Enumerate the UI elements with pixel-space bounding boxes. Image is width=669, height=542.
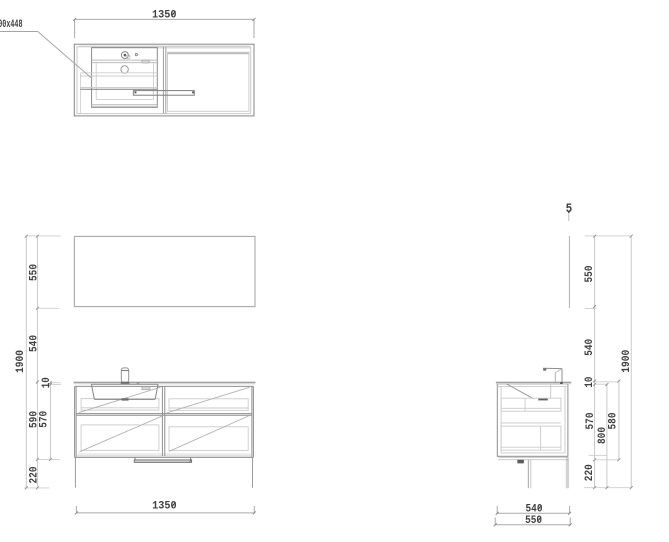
svg-text:10: 10 [584,377,596,388]
svg-text:10: 10 [41,377,53,388]
svg-text:540: 540 [584,339,596,356]
svg-text:540: 540 [526,503,543,515]
svg-text:1350: 1350 [152,500,177,512]
svg-text:800x448: 800x448 [0,19,23,31]
svg-text:540: 540 [29,335,41,352]
svg-text:580: 580 [607,413,619,430]
svg-text:5: 5 [566,202,573,216]
svg-text:550: 550 [525,515,542,527]
svg-text:1900: 1900 [621,350,633,373]
svg-text:550: 550 [584,266,596,283]
svg-text:570: 570 [39,411,51,428]
svg-text:220: 220 [28,467,40,484]
svg-text:1350: 1350 [152,9,177,21]
svg-text:220: 220 [584,464,596,481]
svg-text:1900: 1900 [15,350,27,373]
svg-text:550: 550 [29,264,41,281]
svg-text:570: 570 [585,413,597,430]
